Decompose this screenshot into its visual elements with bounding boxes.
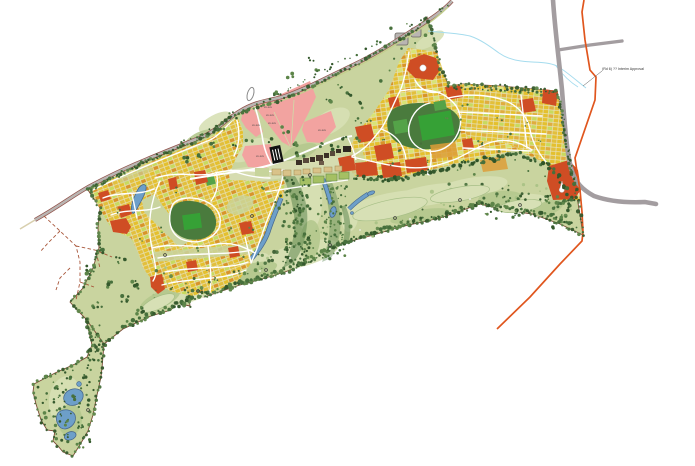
svg-text:xx-xxx: xx-xxx: [256, 154, 265, 158]
svg-text:xx-xxx: xx-xxx: [318, 128, 327, 132]
svg-text:(Rd 6) ?? Interim Approval: (Rd 6) ?? Interim Approval: [602, 67, 644, 71]
svg-text:xx-xxx: xx-xxx: [252, 123, 261, 127]
svg-text:xx-xxx: xx-xxx: [266, 113, 275, 117]
svg-text:xx-xxx: xx-xxx: [268, 121, 277, 125]
